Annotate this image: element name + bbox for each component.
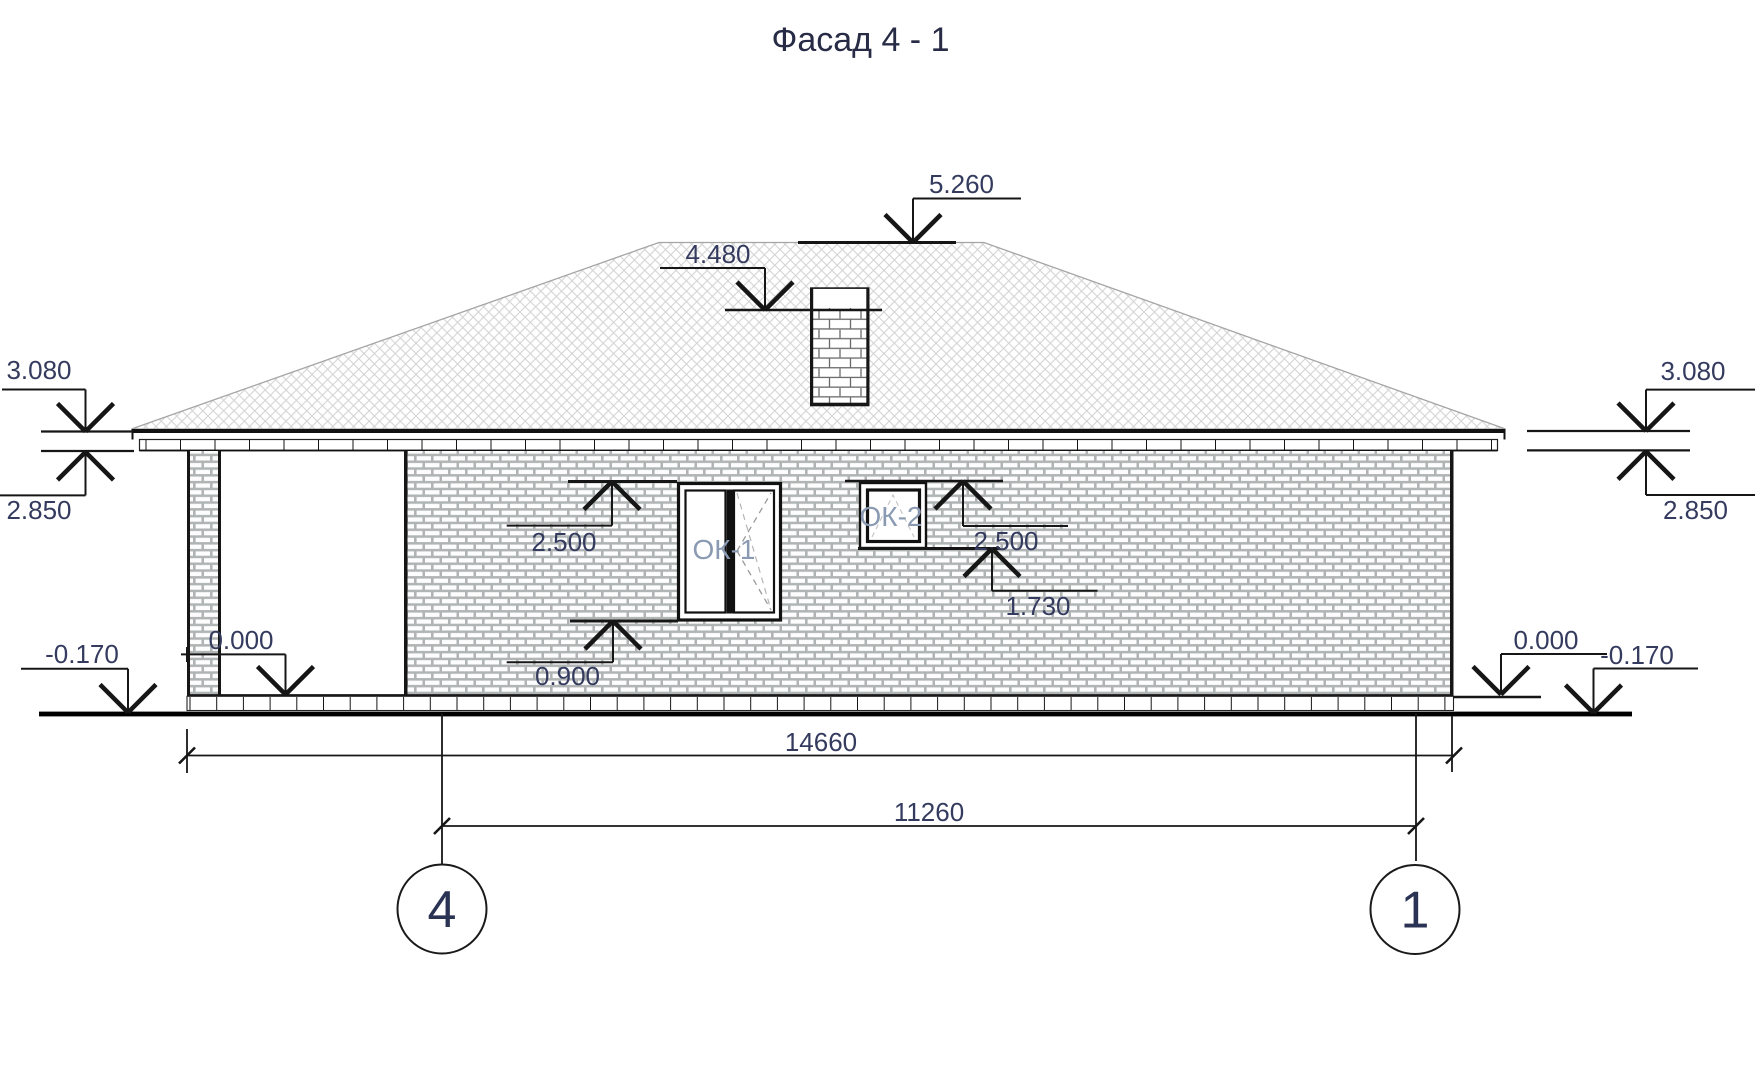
svg-text:5.260: 5.260	[929, 169, 994, 199]
svg-text:Фасад 4 - 1: Фасад 4 - 1	[772, 21, 950, 59]
svg-text:0.900: 0.900	[535, 661, 600, 691]
svg-text:14660: 14660	[785, 727, 857, 757]
svg-text:4: 4	[428, 881, 457, 939]
svg-text:2.500: 2.500	[531, 527, 596, 557]
svg-text:1: 1	[1401, 882, 1430, 940]
svg-text:3.080: 3.080	[1660, 356, 1725, 386]
svg-text:4.480: 4.480	[685, 239, 750, 269]
svg-text:3.080: 3.080	[6, 355, 71, 385]
svg-text:ОК-1: ОК-1	[693, 534, 756, 565]
svg-text:0.000: 0.000	[208, 625, 273, 655]
svg-text:ОК-2: ОК-2	[860, 501, 923, 532]
svg-text:2.850: 2.850	[6, 495, 71, 525]
svg-text:11260: 11260	[894, 797, 964, 827]
svg-text:2.500: 2.500	[973, 526, 1038, 556]
svg-text:0.000: 0.000	[1513, 625, 1578, 655]
svg-text:-0.170: -0.170	[1600, 640, 1674, 670]
svg-text:-0.170: -0.170	[45, 639, 119, 669]
svg-text:1.730: 1.730	[1005, 591, 1070, 621]
svg-text:2.850: 2.850	[1663, 495, 1728, 525]
